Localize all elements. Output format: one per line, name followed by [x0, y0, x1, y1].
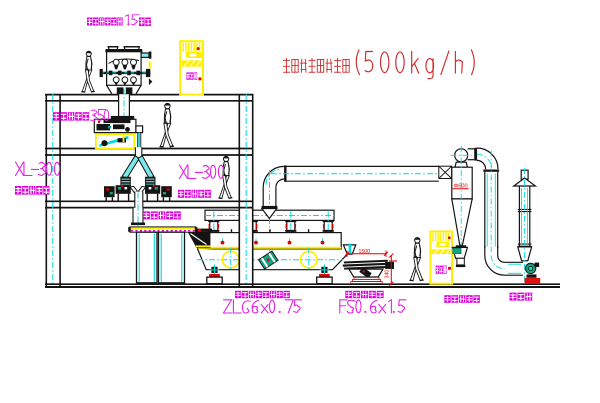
- svg-text:340: 340: [385, 270, 391, 279]
- svg-text:1500: 1500: [359, 249, 371, 255]
